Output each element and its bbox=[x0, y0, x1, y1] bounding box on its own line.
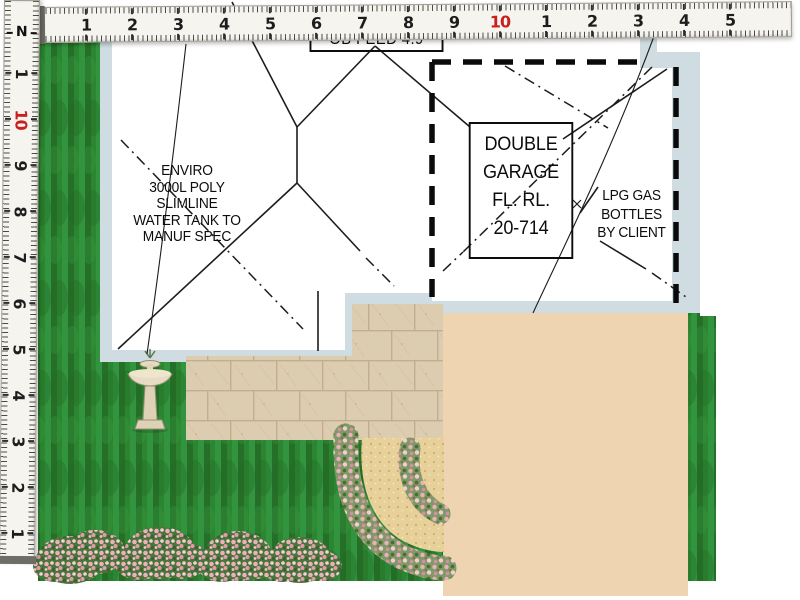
ruler-number: 1 bbox=[75, 8, 97, 42]
ruler-number: 8 bbox=[3, 200, 37, 222]
north-marker: N bbox=[5, 24, 39, 40]
ruler-number: 1 bbox=[4, 62, 38, 84]
ruler-number: 7 bbox=[351, 5, 373, 39]
ruler-number: 9 bbox=[443, 5, 465, 39]
site-plan-drawing bbox=[0, 0, 800, 600]
ruler-number: 4 bbox=[1, 384, 35, 406]
landscape-plan-canvas: OB FEED 4.9 ENVIRO 3000L POLY SLIMLINE W… bbox=[0, 0, 800, 600]
ruler-number: 2 bbox=[121, 7, 143, 41]
ruler-number: 7 bbox=[3, 246, 37, 268]
ruler-number: 9 bbox=[3, 154, 37, 176]
ruler-number: 4 bbox=[213, 6, 235, 40]
vertical-ruler: N 123456789101 bbox=[0, 0, 40, 562]
ruler-number: 2 bbox=[1, 476, 35, 498]
ruler-number: 1 bbox=[0, 522, 34, 544]
ruler-number: 1 bbox=[535, 4, 557, 38]
ruler-number: 2 bbox=[581, 4, 603, 38]
ruler-number: 5 bbox=[259, 6, 281, 40]
white-margin-right-top bbox=[700, 28, 800, 316]
ruler-number: 8 bbox=[397, 5, 419, 39]
deck-area bbox=[443, 313, 688, 596]
ruler-number: 10 bbox=[489, 4, 511, 38]
white-margin-right bbox=[716, 300, 800, 600]
ruler-number: 6 bbox=[2, 292, 36, 314]
ruler-number: 4 bbox=[673, 3, 695, 37]
ruler-number: 5 bbox=[2, 338, 36, 360]
ruler-number: 3 bbox=[1, 430, 35, 452]
ruler-number: 3 bbox=[167, 7, 189, 41]
ruler-number: 3 bbox=[627, 3, 649, 37]
ruler-number: 10 bbox=[4, 108, 38, 130]
ruler-number: 6 bbox=[305, 6, 327, 40]
horizontal-ruler: 1234567891012345 bbox=[40, 1, 792, 43]
ruler-number: 5 bbox=[719, 2, 741, 36]
